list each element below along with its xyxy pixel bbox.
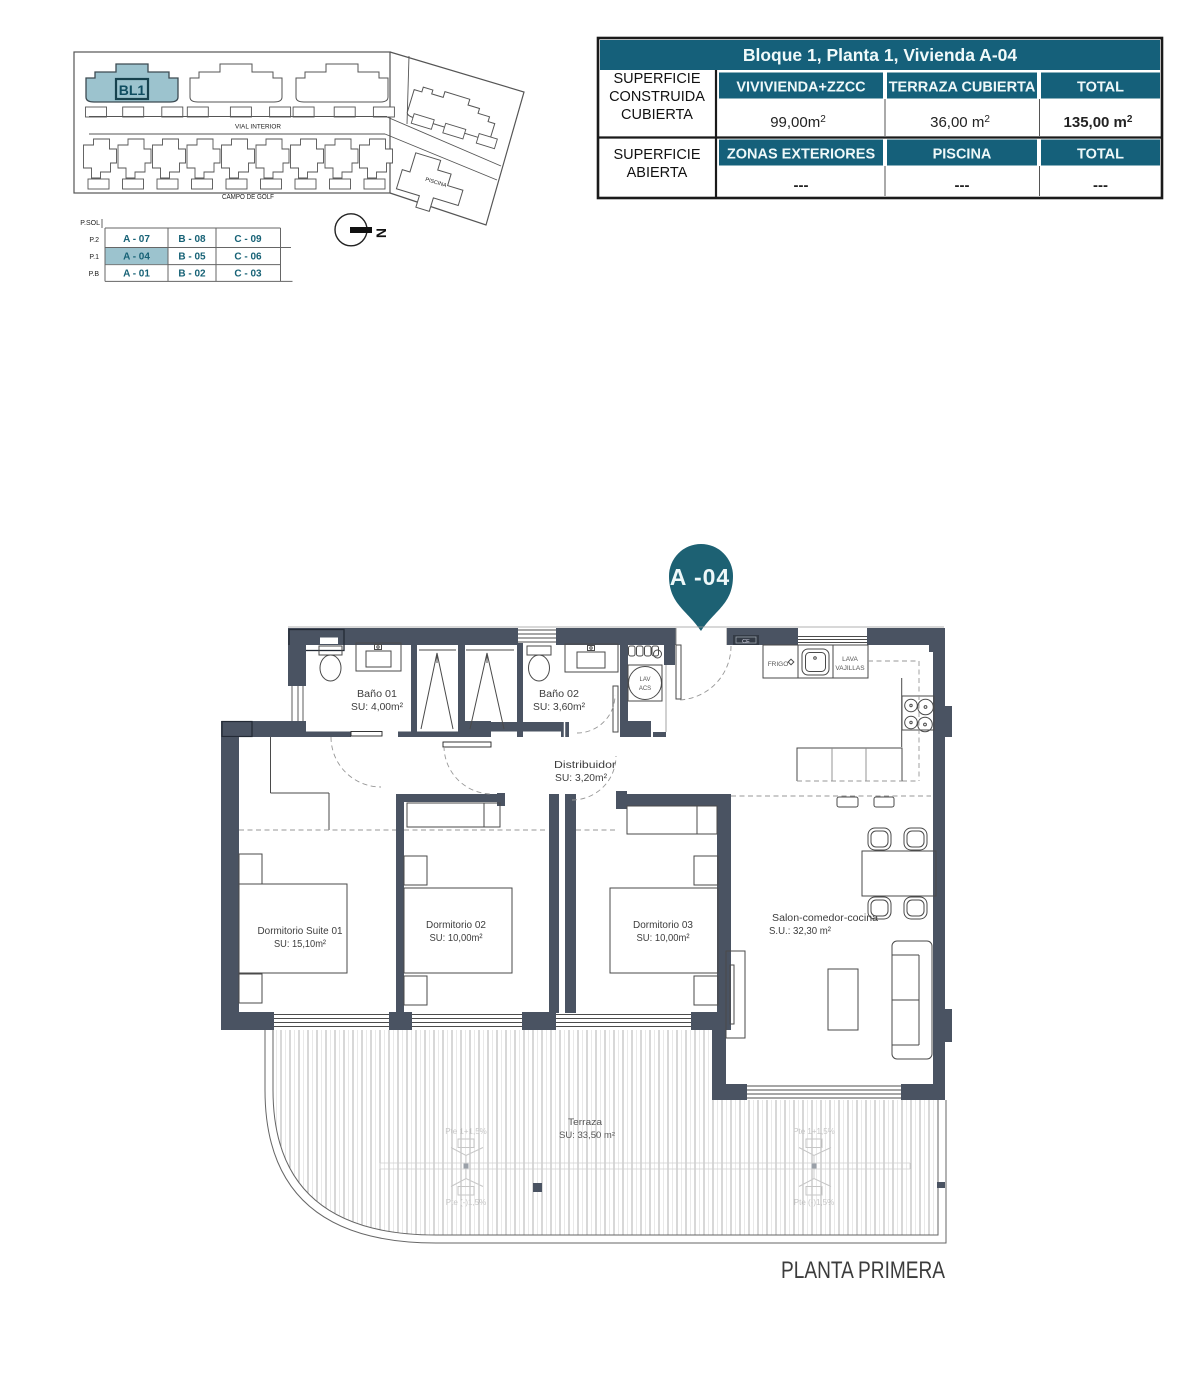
svg-text:TERRAZA CUBIERTA: TERRAZA CUBIERTA <box>889 80 1036 96</box>
svg-text:C - 06: C - 06 <box>234 251 262 262</box>
svg-text:P.2: P.2 <box>89 237 99 244</box>
svg-text:ABIERTA: ABIERTA <box>627 165 688 181</box>
svg-text:Baño 02: Baño 02 <box>539 689 579 700</box>
svg-text:Dormitorio 02: Dormitorio 02 <box>426 920 486 931</box>
svg-text:C - 03: C - 03 <box>234 268 262 279</box>
svg-text:Pte 1+1,5%: Pte 1+1,5% <box>445 1127 487 1136</box>
svg-text:PISCINA: PISCINA <box>933 147 992 163</box>
svg-text:A - 07: A - 07 <box>123 234 150 245</box>
svg-text:Bloque 1, Planta 1, Vivienda A: Bloque 1, Planta 1, Vivienda A-04 <box>743 45 1018 65</box>
svg-text:N: N <box>373 228 389 238</box>
svg-text:135,00 m2: 135,00 m2 <box>1064 114 1133 131</box>
svg-text:LAVA: LAVA <box>842 656 858 663</box>
svg-text:CE: CE <box>742 639 750 645</box>
svg-text:LAV: LAV <box>640 677 651 683</box>
svg-text:CUBIERTA: CUBIERTA <box>621 107 693 123</box>
svg-text:SU: 15,10m²: SU: 15,10m² <box>274 939 327 950</box>
svg-text:Pte (-)1,5%: Pte (-)1,5% <box>794 1198 834 1207</box>
svg-text:C - 09: C - 09 <box>234 234 262 245</box>
svg-text:ACS: ACS <box>639 686 651 692</box>
svg-text:Dormitorio 03: Dormitorio 03 <box>633 920 693 931</box>
svg-text:P.1: P.1 <box>89 254 99 261</box>
svg-text:---: --- <box>794 177 809 194</box>
svg-text:CAMPO DE GOLF: CAMPO DE GOLF <box>222 194 274 201</box>
svg-text:B - 08: B - 08 <box>178 234 206 245</box>
svg-text:VIAL INTERIOR: VIAL INTERIOR <box>235 124 281 131</box>
svg-text:BL1: BL1 <box>119 82 146 98</box>
svg-text:CONSTRUIDA: CONSTRUIDA <box>609 89 705 105</box>
svg-text:B - 05: B - 05 <box>178 251 206 262</box>
svg-text:99,00m2: 99,00m2 <box>770 114 826 131</box>
svg-text:Distribuidor: Distribuidor <box>554 760 617 771</box>
svg-text:SU: 33,50 m²: SU: 33,50 m² <box>559 1130 615 1140</box>
svg-text:Pte 1+1,5%: Pte 1+1,5% <box>793 1127 835 1136</box>
svg-text:Baño 01: Baño 01 <box>357 689 397 700</box>
svg-text:FRIGO: FRIGO <box>768 661 789 668</box>
svg-text:SU: 10,00m²: SU: 10,00m² <box>430 933 484 944</box>
svg-text:Pte (-)1,5%: Pte (-)1,5% <box>446 1198 486 1207</box>
svg-text:SUPERFICIE: SUPERFICIE <box>613 147 700 163</box>
svg-text:Salon-comedor-cocina: Salon-comedor-cocina <box>772 913 878 924</box>
svg-text:S.U.: 32,30 m²: S.U.: 32,30 m² <box>769 926 832 937</box>
svg-text:SUPERFICIE: SUPERFICIE <box>613 71 700 87</box>
svg-text:A - 04: A - 04 <box>123 251 150 262</box>
svg-text:VAJILLAS: VAJILLAS <box>835 665 865 672</box>
svg-text:SU: 3,20m²: SU: 3,20m² <box>555 773 608 784</box>
svg-text:A -04: A -04 <box>670 564 730 590</box>
svg-text:VIVIVIENDA+ZZCC: VIVIVIENDA+ZZCC <box>736 80 866 96</box>
svg-text:PLANTA PRIMERA: PLANTA PRIMERA <box>781 1257 945 1284</box>
svg-text:36,00 m2: 36,00 m2 <box>930 114 990 131</box>
svg-text:P.SOL: P.SOL <box>80 220 100 227</box>
svg-text:Terraza: Terraza <box>568 1117 602 1127</box>
svg-text:TOTAL: TOTAL <box>1077 80 1124 96</box>
svg-text:Dormitorio Suite 01: Dormitorio Suite 01 <box>258 926 343 937</box>
svg-text:---: --- <box>1093 177 1108 194</box>
svg-text:SU: 4,00m²: SU: 4,00m² <box>351 702 404 713</box>
svg-text:SU: 3,60m²: SU: 3,60m² <box>533 702 586 713</box>
svg-text:B - 02: B - 02 <box>178 268 206 279</box>
svg-text:---: --- <box>955 177 970 194</box>
svg-text:A - 01: A - 01 <box>123 268 150 279</box>
svg-text:SU: 10,00m²: SU: 10,00m² <box>637 933 691 944</box>
svg-text:ZONAS EXTERIORES: ZONAS EXTERIORES <box>727 147 876 163</box>
svg-text:TOTAL: TOTAL <box>1077 147 1124 163</box>
svg-text:P.B: P.B <box>89 271 100 278</box>
